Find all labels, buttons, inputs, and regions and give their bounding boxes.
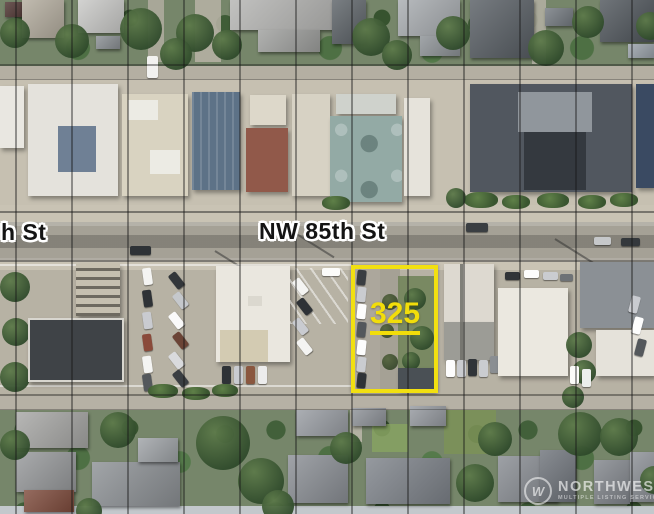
building-roof <box>444 264 494 322</box>
tree <box>528 30 564 66</box>
car <box>246 366 255 384</box>
car <box>570 366 579 384</box>
house-roof <box>138 438 178 462</box>
tree <box>55 24 89 58</box>
aerial-parcel-map: NW 85th St h St 325 W NORTHWEST MULTIPLE… <box>0 0 654 514</box>
tree <box>2 318 30 346</box>
car <box>446 360 455 377</box>
building-roof <box>0 86 24 148</box>
tree <box>456 464 494 502</box>
car <box>457 360 466 377</box>
street-label-partial: h St <box>1 221 46 244</box>
building-roof <box>292 94 330 196</box>
car <box>468 359 477 376</box>
roof-section <box>150 150 180 174</box>
carport-canopy <box>76 264 120 316</box>
car <box>466 223 488 232</box>
nwmls-watermark: W NORTHWEST MULTIPLE LISTING SERVICE <box>524 477 654 505</box>
car <box>621 238 640 246</box>
bush <box>212 384 238 397</box>
tree <box>600 418 638 456</box>
bush <box>148 384 178 398</box>
roof-section <box>220 330 268 362</box>
car <box>222 366 231 384</box>
car <box>258 366 267 384</box>
parking-stall-markings <box>290 268 348 324</box>
car <box>479 360 488 377</box>
tree <box>566 332 592 358</box>
building-roof-blue <box>192 92 240 190</box>
car <box>524 270 539 278</box>
watermark-name: NORTHWEST <box>558 480 654 495</box>
building-roof-navy <box>636 84 654 188</box>
car <box>560 274 573 281</box>
car <box>582 369 591 387</box>
car <box>130 246 151 255</box>
house-roof <box>258 30 320 52</box>
parcel-number-text: 325 <box>370 297 420 335</box>
bush <box>610 193 638 207</box>
tree <box>0 430 30 460</box>
house-roof <box>92 462 180 506</box>
car <box>543 272 558 280</box>
watermark-subtitle: MULTIPLE LISTING SERVICE <box>558 495 654 502</box>
building-roof <box>404 98 430 196</box>
bush <box>537 193 569 208</box>
tree <box>0 362 30 392</box>
tree <box>0 272 30 302</box>
house-roof <box>78 0 124 33</box>
tree <box>120 8 162 50</box>
street-label-nw-85th-st: NW 85th St <box>259 220 385 243</box>
alley-south <box>0 396 654 410</box>
house-roof <box>628 44 654 58</box>
courtyard <box>524 132 586 190</box>
tree <box>330 432 362 464</box>
alley-north <box>0 66 654 80</box>
house-roof <box>366 458 450 504</box>
house-roof <box>96 36 120 49</box>
tree <box>562 386 584 408</box>
tree <box>558 412 602 456</box>
car <box>505 272 520 280</box>
bush <box>464 192 498 208</box>
car <box>594 237 611 245</box>
tree <box>212 30 242 60</box>
building-roof-white <box>498 288 568 376</box>
building-roof-white <box>596 330 654 376</box>
bush <box>502 195 530 209</box>
lot-boundary-line <box>0 264 352 266</box>
bush <box>578 195 606 209</box>
house-roof <box>545 8 573 26</box>
building-roof <box>336 94 396 114</box>
lawn <box>372 424 408 452</box>
watermark-text: NORTHWEST MULTIPLE LISTING SERVICE <box>558 480 654 502</box>
parcel-number-label: 325 <box>352 299 438 329</box>
tree <box>262 490 294 514</box>
building-roof <box>250 95 286 125</box>
house-roof <box>16 452 76 492</box>
nwmls-logo-letter: W <box>532 484 544 499</box>
bush <box>322 196 350 210</box>
car <box>322 268 340 276</box>
roof-seam <box>460 264 463 360</box>
house-roof <box>230 0 348 30</box>
building-roof-teal <box>330 116 402 202</box>
car <box>234 366 243 384</box>
house-roof <box>410 406 446 426</box>
building-roof <box>444 322 494 360</box>
roof-section <box>518 92 592 132</box>
tree <box>572 6 604 38</box>
tree <box>196 416 250 470</box>
building-roof-dark <box>28 318 124 382</box>
tree <box>478 422 512 456</box>
rooftop-unit <box>248 296 262 306</box>
truck <box>147 56 158 78</box>
building-roof-section <box>58 126 96 172</box>
tree <box>436 16 470 50</box>
bush <box>182 387 210 400</box>
tree <box>382 40 412 70</box>
house-roof-red <box>24 490 74 512</box>
house-roof <box>470 0 534 58</box>
tree <box>160 38 192 70</box>
roof-section <box>128 100 158 120</box>
nwmls-logo-icon: W <box>524 477 552 505</box>
tree <box>0 18 30 48</box>
building-roof-rust <box>246 128 288 192</box>
tree <box>446 188 466 208</box>
tree <box>100 412 136 448</box>
house-roof <box>352 408 386 426</box>
